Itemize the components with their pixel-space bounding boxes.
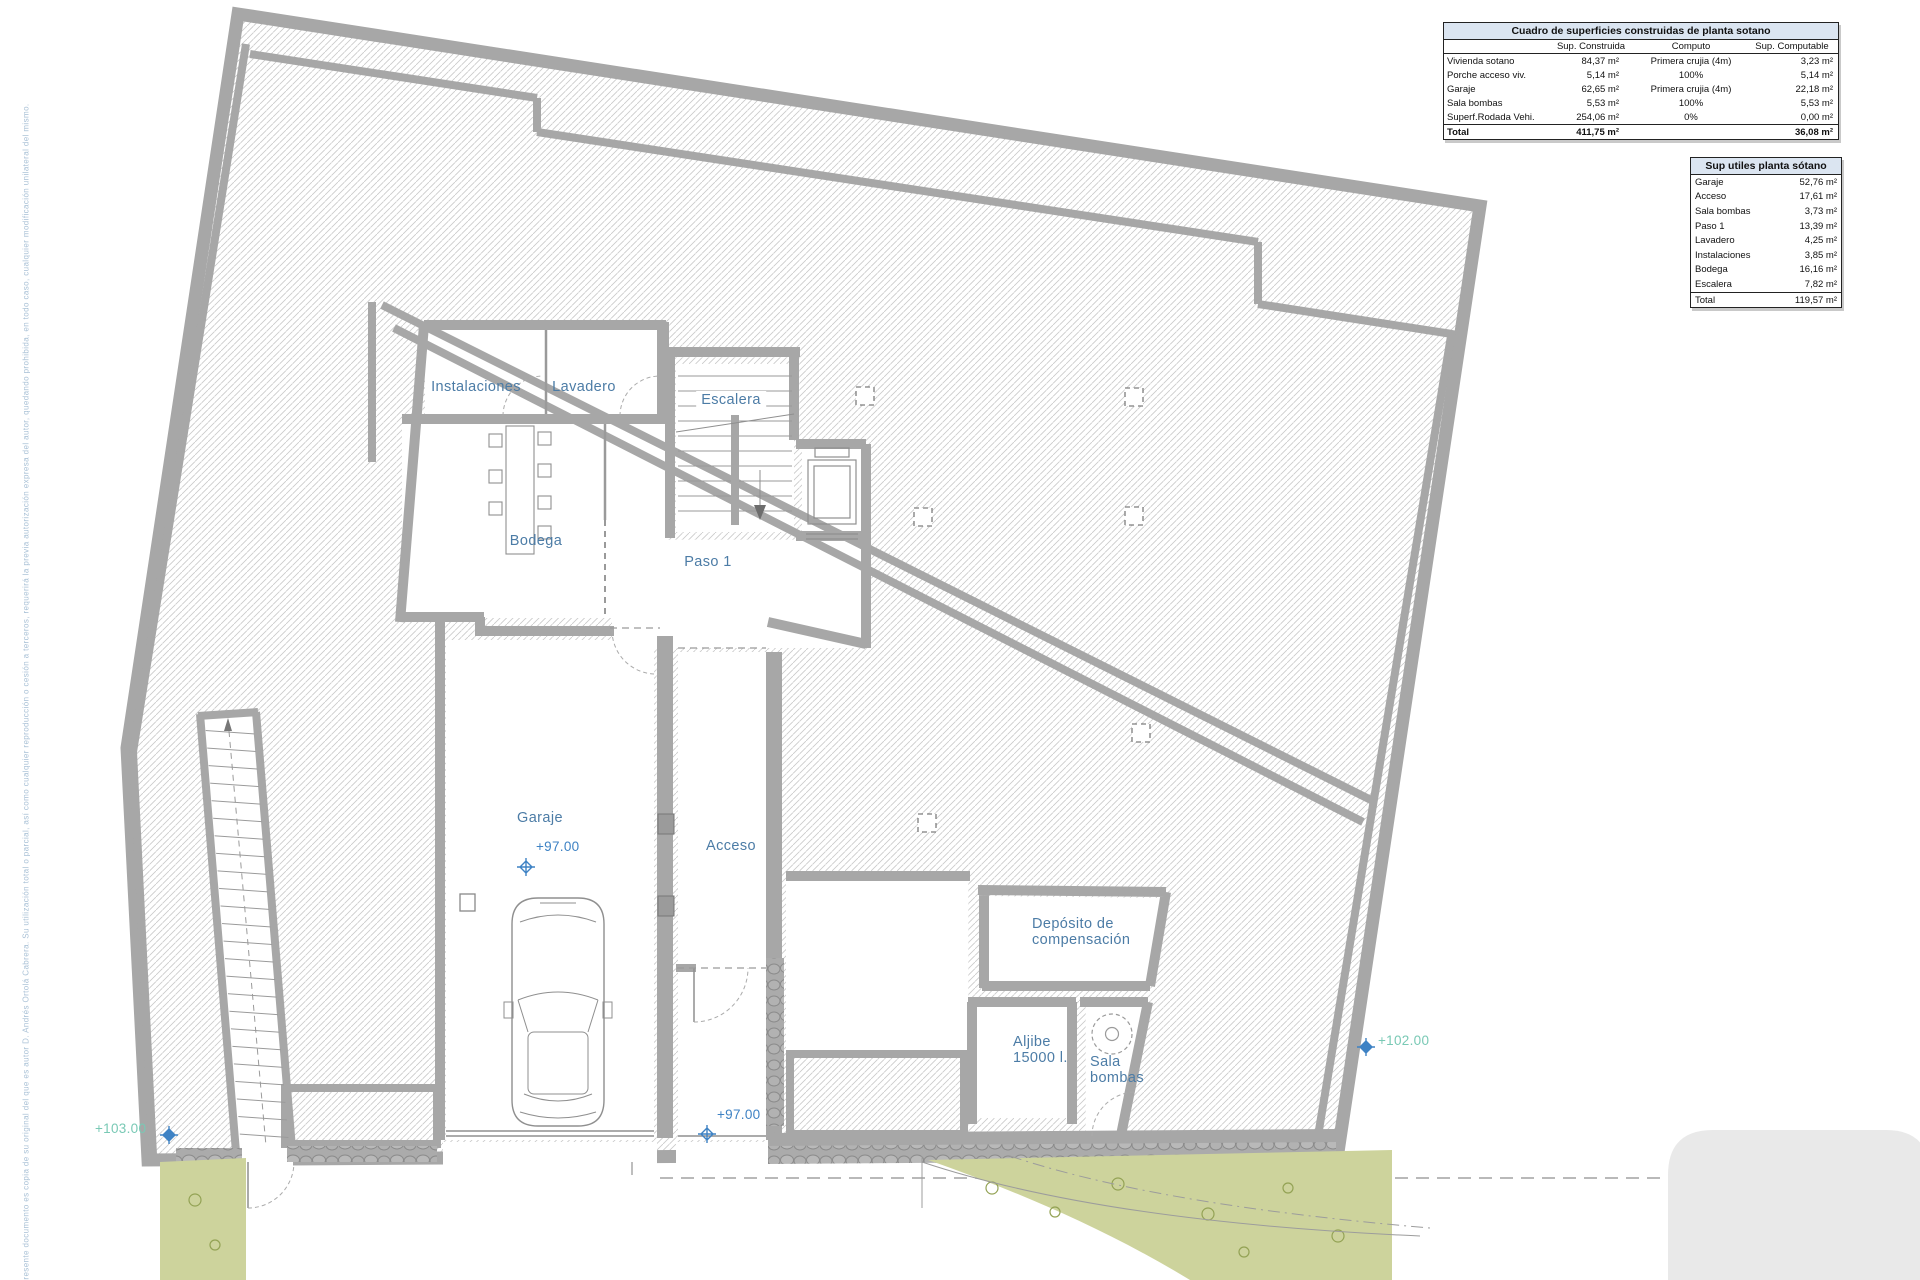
landscape-green xyxy=(160,1150,1392,1280)
built-surfaces-title: Cuadro de superficies construidas de pla… xyxy=(1444,23,1838,40)
table-row: Superf.Rodada Vehi. 254,06 m² 0% 0,00 m² xyxy=(1444,110,1838,124)
table-total-row: Total 119,57 m² xyxy=(1691,292,1841,308)
table-row: Instalaciones 3,85 m² xyxy=(1691,248,1841,263)
label-bodega: Bodega xyxy=(510,533,562,549)
table-row: Garaje 62,65 m² Primera crujia (4m) 22,1… xyxy=(1444,82,1838,96)
label-sala-bombas: Sala bombas xyxy=(1090,1054,1144,1086)
label-lavadero: Lavadero xyxy=(552,379,616,395)
level-acceso: +97.00 xyxy=(717,1114,760,1129)
level-garaje: +97.00 xyxy=(536,846,579,861)
useful-surfaces-title: Sup utiles planta sótano xyxy=(1691,158,1841,175)
table-row: Paso 1 13,39 m² xyxy=(1691,219,1841,234)
table-row: Sala bombas 5,53 m² 100% 5,53 m² xyxy=(1444,96,1838,110)
label-paso1: Paso 1 xyxy=(684,554,732,570)
level-left: +103.00 xyxy=(95,1128,146,1143)
level-right: +102.00 xyxy=(1378,1040,1429,1055)
table-row: Vivienda sotano 84,37 m² Primera crujia … xyxy=(1444,54,1838,68)
table-row: Acceso 17,61 m² xyxy=(1691,190,1841,205)
label-deposito: Depósito de compensación xyxy=(1032,916,1130,948)
built-surfaces-header: Sup. Construida Computo Sup. Computable xyxy=(1444,40,1838,54)
label-garaje: Garaje xyxy=(517,810,563,826)
built-surfaces-table: Cuadro de superficies construidas de pla… xyxy=(1443,22,1839,140)
floor-plan-sheet: Instalaciones Lavadero Escalera Bodega P… xyxy=(0,0,1920,1280)
table-row: Garaje 52,76 m² xyxy=(1691,175,1841,190)
table-total-row: Total 411,75 m² 36,08 m² xyxy=(1444,124,1838,139)
basement-floor-plan-drawing xyxy=(0,0,1920,1280)
pool-mask-blob xyxy=(1668,1130,1920,1280)
garage-post xyxy=(460,894,475,911)
table-row: Bodega 16,16 m² xyxy=(1691,263,1841,278)
label-acceso: Acceso xyxy=(706,838,756,854)
table-row: Escalera 7,82 m² xyxy=(1691,277,1841,292)
table-row: Sala bombas 3,73 m² xyxy=(1691,204,1841,219)
label-aljibe: Aljibe 15000 l. xyxy=(1013,1034,1068,1066)
table-row: Lavadero 4,25 m² xyxy=(1691,233,1841,248)
table-row: Porche acceso viv. 5,14 m² 100% 5,14 m² xyxy=(1444,68,1838,82)
label-escalera: Escalera xyxy=(696,391,766,409)
label-instalaciones: Instalaciones xyxy=(431,379,521,395)
copyright-note: El presente documento es copia de su ori… xyxy=(22,365,31,1280)
useful-surfaces-table: Sup utiles planta sótano Garaje 52,76 m²… xyxy=(1690,157,1842,308)
